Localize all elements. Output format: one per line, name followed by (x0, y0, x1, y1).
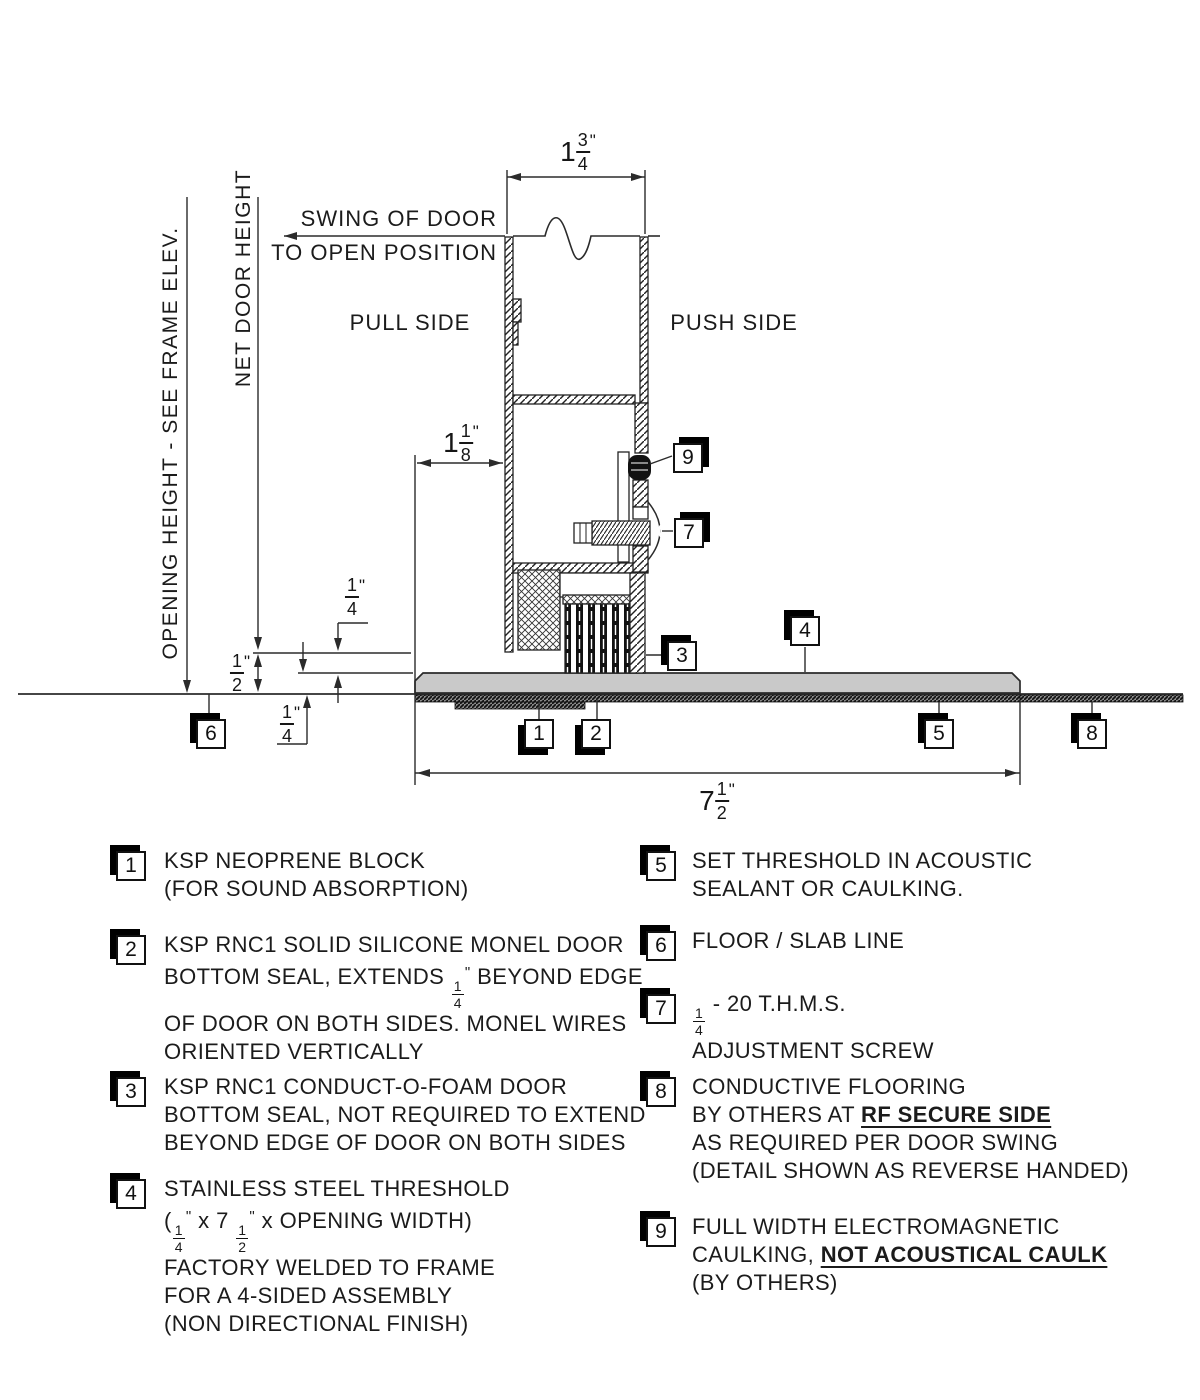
dim-threshold-thickness: 14 " (280, 703, 300, 745)
threshold-section (415, 673, 1020, 693)
door-bottom-assembly (518, 570, 645, 673)
legend-box-3: 3 (116, 1077, 146, 1107)
callout-5: 5 (924, 719, 954, 749)
callout-2: 2 (581, 719, 611, 749)
legend-box-4: 4 (116, 1179, 146, 1209)
callout-9: 9 (673, 443, 703, 473)
foam-seal-retainer (630, 573, 645, 673)
callout-3: 3 (667, 641, 697, 671)
legend-item-7: 14 - 20 T.H.M.S. ADJUSTMENT SCREW (692, 990, 934, 1065)
dim-seal-extension: 14 " (345, 576, 365, 618)
callout-4: 4 (790, 616, 820, 646)
legend-item-6: FLOOR / SLAB LINE (692, 927, 904, 955)
adjustment-assembly (574, 452, 663, 572)
callout-8: 8 (1077, 719, 1107, 749)
legend-item-5: SET THRESHOLD IN ACOUSTIC SEALANT OR CAU… (692, 847, 1032, 903)
legend-item-3: KSP RNC1 CONDUCT-O-FOAM DOOR BOTTOM SEAL… (164, 1073, 646, 1157)
sealant-and-conductive-flooring (415, 695, 1183, 709)
callout-7: 7 (674, 518, 704, 548)
legend-box-9: 9 (646, 1217, 676, 1247)
callout-1: 1 (524, 719, 554, 749)
dim-door-thickness: 1 34 " (560, 131, 596, 173)
push-side-label: PUSH SIDE (670, 310, 798, 336)
legend-box-1: 1 (116, 851, 146, 881)
legend-item-4: STAINLESS STEEL THRESHOLD (14" x 7 12" x… (164, 1175, 510, 1338)
swing-label-line2: TO OPEN POSITION (271, 240, 497, 266)
neoprene-block (518, 570, 560, 650)
legend-box-6: 6 (646, 931, 676, 961)
legend-box-5: 5 (646, 851, 676, 881)
caulking-blob (628, 455, 651, 480)
opening-height-label: OPENING HEIGHT - SEE FRAME ELEV. (159, 226, 183, 659)
swing-label-line1: SWING OF DOOR (301, 206, 497, 232)
dim-threshold-width: 7 12 " (699, 780, 735, 822)
monel-seal-strips (565, 604, 630, 673)
legend-box-7: 7 (646, 994, 676, 1024)
legend-item-2: KSP RNC1 SOLID SILICONE MONEL DOOR BOTTO… (164, 931, 643, 1066)
legend-box-8: 8 (646, 1077, 676, 1107)
dim-undercut: 12 " (230, 652, 250, 694)
dim-door-clearance: 1 18 " (443, 422, 479, 464)
door-threshold-detail-drawing: SWING OF DOOR TO OPEN POSITION PULL SIDE… (0, 0, 1200, 1400)
legend-item-8: CONDUCTIVE FLOORING BY OTHERS AT RF SECU… (692, 1073, 1129, 1185)
legend-box-2: 2 (116, 935, 146, 965)
legend-item-9: FULL WIDTH ELECTROMAGNETIC CAULKING, NOT… (692, 1213, 1107, 1297)
net-door-height-label: NET DOOR HEIGHT (232, 169, 256, 387)
adjustment-screw (574, 521, 650, 545)
callout-6: 6 (196, 719, 226, 749)
pull-side-label: PULL SIDE (350, 310, 471, 336)
legend-item-1: KSP NEOPRENE BLOCK (FOR SOUND ABSORPTION… (164, 847, 469, 903)
